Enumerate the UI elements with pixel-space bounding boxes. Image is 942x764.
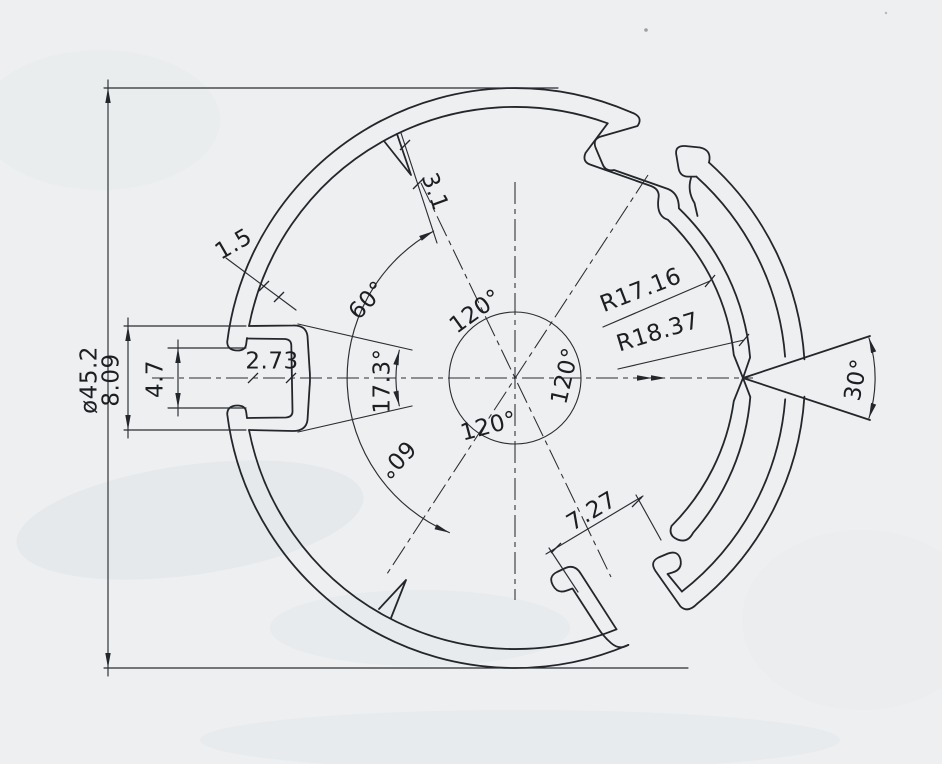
dim-arrow: [175, 393, 180, 408]
profile-outline: [227, 88, 870, 668]
dim-bottom-slot-width: 7.27: [546, 487, 661, 592]
recessed-wall-lower: [671, 378, 751, 541]
dim-notch-angle-label: 30°: [840, 357, 874, 403]
dim-radius-outer-label: R18.37: [613, 308, 702, 358]
dim-radius-inner-label: R17.16: [597, 263, 686, 318]
scanned-drawing-page: ø45.2 8.09 4.7 2.73 1.5 3.1: [0, 0, 942, 764]
profile-section-drawing: ø45.2 8.09 4.7 2.73 1.5 3.1: [0, 0, 942, 764]
centerline-arrow: [637, 375, 652, 380]
centerline-arrow: [651, 375, 666, 380]
dim-notch-angle: 30°: [840, 337, 876, 419]
dim-angle-120-right-label: 120°: [546, 345, 584, 407]
angle-arc-large: [347, 231, 449, 532]
outer-wall-lower-arc: [227, 406, 628, 668]
top-right-slot-step: [690, 178, 698, 216]
dim-angle-middle-label: 17.3°: [370, 348, 396, 413]
outer-wall-right-upper-arc: [709, 163, 804, 360]
dim-angle-upper-label: 60°: [344, 276, 392, 325]
bottom-rib: [379, 580, 406, 618]
dim-arrow: [866, 337, 876, 353]
extension-line: [636, 495, 661, 540]
paper-texture: [0, 12, 942, 764]
dim-rib-length-label: 3.1: [416, 169, 453, 214]
dim-arrow: [125, 326, 130, 341]
dim-arrow: [125, 415, 130, 430]
dim-arrow: [435, 524, 451, 535]
dim-arrow: [866, 403, 876, 419]
dim-radius-outer: R18.37: [613, 308, 749, 369]
dim-arrow: [105, 653, 110, 668]
dim-angle-120-top-label: 120°: [445, 284, 507, 339]
outer-wall-right-lower-arc: [698, 397, 805, 604]
scan-speck: [644, 28, 648, 32]
dim-left-slot-depth-label: 2.73: [245, 349, 298, 375]
leader-line: [226, 258, 296, 310]
scan-speck: [885, 12, 887, 14]
dim-left-slot-opening-label: 4.7: [143, 360, 169, 398]
top-rib: [384, 134, 411, 175]
inner-wall-lower-arc: [249, 430, 617, 649]
dim-angle-120-bottom-label: 120°: [458, 407, 520, 447]
top-right-slot-lip: [676, 146, 710, 177]
bottom-right-slot-right-wall: [653, 553, 697, 610]
bottom-right-slot-left-wall: [551, 567, 628, 647]
dim-arrow: [175, 348, 180, 363]
dim-arrow: [105, 88, 110, 103]
oblique-tick: [551, 543, 561, 553]
dim-left-angles: 60° 17.3° 60°: [298, 229, 450, 535]
dim-left-slot-height-label: 8.09: [99, 353, 125, 406]
dim-rib-length: 3.1: [400, 133, 453, 243]
inner-wall-right-upper-arc: [696, 177, 785, 357]
